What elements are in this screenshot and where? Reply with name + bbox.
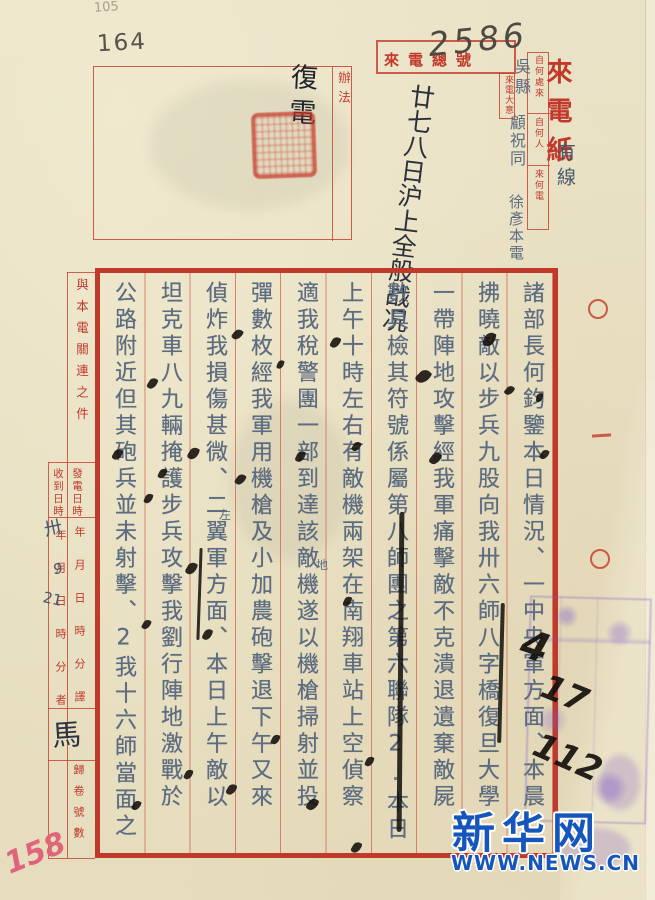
purple-smudge	[600, 755, 640, 810]
related-docs-label: 與本電關連之件	[72, 278, 91, 429]
received-datetime-units: 年月日時分者	[52, 529, 68, 727]
origin-field-label-from-place: 自何處來	[532, 55, 545, 99]
origin-field-label-from-person: 自何人	[532, 117, 545, 150]
line-type-handwritten: 有線	[552, 142, 579, 192]
red-seal-stamp	[251, 111, 317, 179]
body-column-5: 上午十時左右有敵機兩架在南翔車站上空偵察	[334, 281, 366, 847]
divider	[332, 67, 333, 241]
form-line	[48, 760, 95, 761]
body-column-2: 拂曉敵以步兵九股向我卅六師八字橋復旦大學	[470, 281, 502, 847]
body-column-7: 彈數枚經我軍用機槍及小加農砲擊退下午又來	[243, 281, 275, 847]
received-month-handwritten: 9	[53, 560, 63, 578]
translator-signature: 馬	[51, 711, 83, 755]
action-label: 辦法	[334, 71, 353, 110]
origin-field-label-what-line: 來何電	[532, 169, 545, 202]
origin-value-from-person: 顧祝同	[504, 114, 528, 168]
body-column-10: 公路附近但其砲兵並未射擊、2我十六師當面之	[107, 281, 139, 847]
summary-label: 來電大意	[502, 75, 515, 115]
received-day-handwritten: 21	[41, 588, 63, 610]
divider	[528, 165, 550, 166]
pencil-page-number: 164	[96, 29, 147, 58]
body-column-4: 數具檢其符號係屬第八師團之第六聯隊2.本日	[379, 281, 411, 847]
telegram-scan-page: 105 164 來電總號 2586 來電紙 有線 自何處來 自何人 來何電 吳縣…	[0, 0, 655, 900]
origin-value-what-line: 徐彥本電	[506, 194, 527, 262]
body-column-9: 坦克車八九輛掩護步兵攻擊我劉行陣地激戰於	[153, 281, 185, 847]
file-number-label: 歸卷號數	[70, 764, 86, 848]
form-line	[67, 272, 95, 273]
received-datetime-label: 收到日時	[51, 468, 66, 518]
margin-file-no-circle	[590, 549, 610, 569]
inserted-char-di: 地	[316, 556, 328, 573]
divider	[528, 113, 550, 114]
margin-file-no-circle	[588, 299, 608, 319]
sent-datetime-label: 發電日時	[70, 468, 85, 518]
pencil-faint-number: 105	[94, 0, 120, 16]
body-column-8: 偵炸我損傷甚微、二翼軍方面、本日上午敵以	[198, 281, 230, 847]
body-column-3: 一帶陣地攻擊經我軍痛擊敵不克潰退遺棄敵屍	[425, 281, 457, 847]
sent-datetime-units: 年月日時分譯	[71, 526, 87, 724]
red-pencil-number: 158	[0, 826, 71, 882]
inserted-char-zuo: 左	[219, 506, 231, 523]
xinhuanet-url-watermark: WWW.NEWS.CN	[451, 851, 640, 875]
form-line	[48, 462, 95, 463]
